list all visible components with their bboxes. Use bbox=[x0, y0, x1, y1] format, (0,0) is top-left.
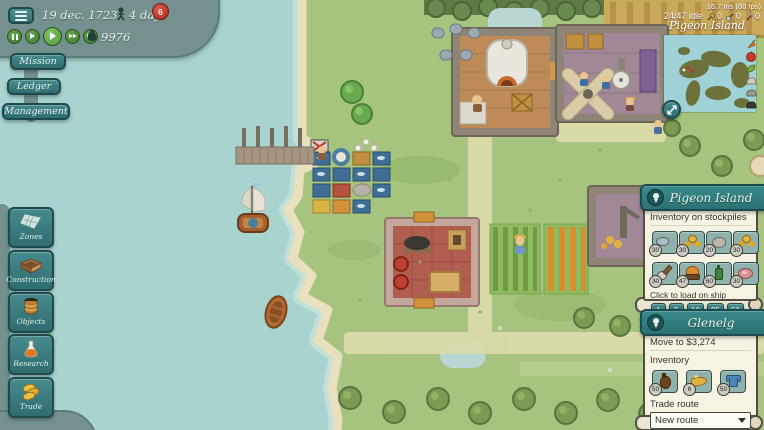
sidebar-item-label: Zones bbox=[20, 232, 43, 241]
glenelg-panel-header: Glenelg bbox=[640, 309, 764, 336]
butcher-building[interactable] bbox=[385, 212, 479, 308]
fps-counter: 16.7 ms (60 fps) bbox=[707, 2, 761, 11]
location-pin-icon bbox=[647, 189, 664, 206]
item-count-badge: 30 bbox=[649, 275, 662, 288]
item-count-badge: 30 bbox=[676, 244, 689, 257]
limestone-icon bbox=[745, 75, 757, 86]
trade-route-value: New route bbox=[655, 415, 698, 426]
expand-arrows-icon bbox=[666, 104, 678, 116]
mission-button[interactable]: Mission bbox=[10, 53, 66, 70]
item-count-badge: 30 bbox=[649, 244, 662, 257]
inventory-item-jug[interactable]: 50 bbox=[652, 370, 678, 393]
sidebar-item-research[interactable]: Research bbox=[8, 334, 54, 375]
item-count-badge: 60 bbox=[703, 275, 716, 288]
inventory-item-fish[interactable]: 30 bbox=[652, 231, 678, 254]
island-panel-header: Pigeon Island bbox=[640, 184, 764, 211]
scroll-curl-decor bbox=[750, 156, 764, 176]
item-count-badge: 47 bbox=[676, 275, 689, 288]
money-label: 9976 bbox=[101, 30, 130, 44]
barrel-icon bbox=[21, 297, 41, 317]
inventory-item-bottle[interactable]: 60 bbox=[706, 262, 732, 285]
trade-route-dropdown[interactable]: New route bbox=[650, 412, 751, 429]
coal-icon bbox=[745, 99, 757, 110]
island-panel-body: Inventory on stockpiles 30 30 20 30 30 4… bbox=[643, 206, 758, 301]
sidebar-item-label: Trade bbox=[20, 402, 42, 411]
item-count-badge: 30 bbox=[730, 275, 743, 288]
inventory-item-clay-pot[interactable]: 47 bbox=[679, 262, 705, 285]
sidebar-item-label: Research bbox=[13, 359, 48, 368]
item-count-badge: 30 bbox=[730, 244, 743, 257]
date-label: 19 dec. 1723 bbox=[42, 8, 117, 22]
leaf-icon bbox=[745, 63, 757, 74]
minimap-resource-legend bbox=[745, 39, 757, 110]
sidebar-item-construction[interactable]: Construction bbox=[8, 250, 54, 291]
coins-icon bbox=[20, 382, 42, 402]
stockpile-inventory-label: Inventory on stockpiles bbox=[650, 212, 751, 226]
chevron-down-icon bbox=[738, 418, 746, 423]
menu-button[interactable] bbox=[8, 7, 34, 24]
trade-route-label: Trade route bbox=[650, 399, 751, 410]
item-count-badge: 6 bbox=[683, 383, 696, 396]
inventory-item-gold-ore[interactable]: 30 bbox=[679, 231, 705, 254]
play-active-icon[interactable] bbox=[43, 27, 62, 46]
zone-grid-icon bbox=[19, 212, 43, 232]
inventory-item-gold-bars[interactable]: 6 bbox=[686, 370, 712, 393]
flask-icon bbox=[21, 339, 41, 359]
sidebar-item-zones[interactable]: Zones bbox=[8, 207, 54, 248]
apple-icon bbox=[745, 51, 757, 62]
inventory-item-shovel[interactable]: 30 bbox=[652, 262, 678, 285]
management-button[interactable]: Management bbox=[2, 103, 70, 120]
crop-fields[interactable] bbox=[490, 224, 588, 294]
load-on-ship-label: Click to load on ship bbox=[650, 290, 751, 300]
playback-controls bbox=[7, 27, 98, 46]
sidebar-item-trade[interactable]: Trade bbox=[8, 377, 54, 418]
glenelg-inventory-label: Inventory bbox=[650, 355, 751, 366]
stockpile-item-grid: 30 30 20 30 30 47 60 30 bbox=[652, 231, 751, 285]
notification-badge[interactable]: 6 bbox=[152, 3, 169, 20]
glenelg-panel-body: Move to $3,274 Inventory 50 6 50 Trade r… bbox=[643, 331, 758, 417]
minimap[interactable] bbox=[664, 35, 756, 112]
sidebar-item-objects[interactable]: Objects bbox=[8, 292, 54, 333]
mill-building[interactable] bbox=[556, 25, 668, 122]
island-panel-title: Pigeon Island bbox=[668, 191, 764, 205]
fast-forward-icon[interactable] bbox=[65, 29, 80, 44]
sidebar-item-label: Construction bbox=[6, 275, 55, 284]
item-count-badge: 20 bbox=[703, 244, 716, 257]
play-icon[interactable] bbox=[25, 29, 40, 44]
minimap-terrain bbox=[664, 35, 756, 112]
inventory-item-shirt[interactable]: 50 bbox=[720, 370, 746, 393]
ledger-button[interactable]: Ledger bbox=[7, 78, 61, 95]
sidebar-item-label: Objects bbox=[17, 317, 46, 326]
move-to-label[interactable]: Move to $3,274 bbox=[650, 337, 751, 351]
foundation-icon bbox=[18, 255, 44, 275]
minimap-title: Pigeon Island bbox=[652, 19, 762, 32]
location-pin-icon bbox=[647, 314, 664, 331]
glenelg-panel-title: Glenelg bbox=[668, 316, 764, 330]
iron-icon bbox=[745, 87, 757, 98]
item-count-badge: 50 bbox=[649, 383, 662, 396]
inventory-item-gold-nuggets[interactable]: 30 bbox=[733, 231, 759, 254]
game-screen: 19 dec. 1723 4 days 6 9976 Mission Ledge… bbox=[0, 0, 764, 430]
glenelg-item-row: 50 6 50 bbox=[652, 370, 751, 393]
money-icon bbox=[86, 29, 98, 43]
inventory-item-ham[interactable]: 30 bbox=[733, 262, 759, 285]
carrot-icon bbox=[745, 39, 757, 50]
walker-icon bbox=[116, 7, 126, 21]
pause-icon[interactable] bbox=[7, 29, 22, 44]
bakery-building[interactable] bbox=[452, 28, 559, 136]
minimap-expand-button[interactable] bbox=[662, 100, 681, 119]
inventory-item-stone[interactable]: 20 bbox=[706, 231, 732, 254]
item-count-badge: 50 bbox=[717, 383, 730, 396]
